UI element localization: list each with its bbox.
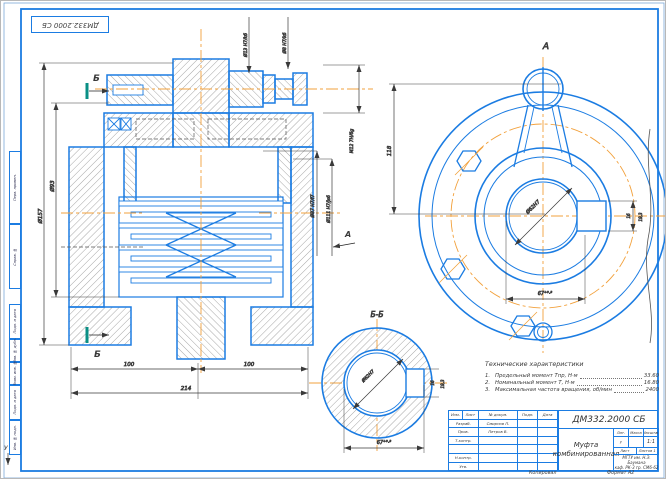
dim-d93: Ø93 <box>49 180 56 193</box>
signature-row: Пров. Петров В. <box>449 428 558 437</box>
sheets-value: 1 <box>653 449 655 453</box>
dim-d87: Ø87 H7/f7 <box>309 194 316 218</box>
doc-number: ДМ332.2000 СБ <box>559 411 659 429</box>
dim-118: 118 <box>387 145 393 156</box>
keyway-a <box>577 201 606 231</box>
organization: МГТУ им. Н.Э. Баумана каф. РК-3 гр. СМ6-… <box>614 455 659 470</box>
tech-req-item: 1. Предельный момент Тпр, Н·м 33.60 <box>485 373 659 380</box>
dim-100-left: 100 <box>124 362 135 368</box>
tech-req-item: 3. Максимальная частота вращения, об/мин… <box>485 387 659 394</box>
side-column-podp-data-2: Подп. и дата <box>9 385 21 420</box>
side-column-perv-primen: Перв. примен. <box>9 151 21 224</box>
dim-100-right: 100 <box>244 362 255 368</box>
title-block-signatures: Изм. Лист № докум. Подп. Дата Разраб. См… <box>449 411 559 470</box>
bearing-seal <box>108 118 131 130</box>
section-letter-bottom: Б <box>94 350 101 360</box>
format-label: Формат А2 <box>607 471 634 476</box>
section-b-label: Б-Б <box>371 310 384 319</box>
side-column-inv-podl: Инв. № подл. <box>9 420 21 455</box>
dim-bore-a: Ø62H7 <box>524 198 542 216</box>
dim-214: 214 <box>181 386 192 392</box>
lit-value: у <box>614 437 629 448</box>
dotted-leader <box>580 373 642 379</box>
technical-requirements: Технические характеристики 1. Предельный… <box>485 361 659 394</box>
doc-number-stamp: ДМ332.2000 СБ <box>31 16 109 33</box>
dotted-leader <box>614 387 644 393</box>
section-letter-top: Б <box>93 74 100 84</box>
keyway-b <box>406 369 424 397</box>
scale-value: 1:1 <box>644 437 659 448</box>
signature-row: Разраб. Смирнов П. <box>449 420 558 429</box>
drawing-sheet: У <box>0 0 666 479</box>
dim-keyway-b: 67⁺⁰·³ <box>377 440 392 446</box>
side-column-vzam-inv: Взам. инв. № <box>9 362 21 385</box>
dim-k19-b: 19,3 <box>440 379 445 388</box>
doc-number-stamp-text: ДМ332.2000 СБ <box>42 21 99 29</box>
signature-row: Т.контр. <box>449 437 558 446</box>
signature-row: Н.контр. <box>449 454 558 463</box>
signature-row <box>449 445 558 454</box>
dim-d8: Ø8 H7/k6 <box>281 32 288 54</box>
signature-row: Утв. <box>449 463 558 472</box>
drawing-canvas: У <box>1 1 666 479</box>
title-block: Изм. Лист № докум. Подп. Дата Разраб. См… <box>448 410 658 471</box>
view-a-label: А <box>542 42 549 52</box>
dim-d157: Ø157 <box>37 208 44 224</box>
tech-req-header: Технические характеристики <box>485 361 659 368</box>
dim-d13: Ø13 H7/k6 <box>242 33 249 58</box>
dim-keyway-a: 67⁺⁰·³ <box>538 291 553 297</box>
side-column-podp-data-1: Подп. и дата <box>9 304 21 339</box>
side-column-inv-dubl: Инв. № дубл. <box>9 339 21 362</box>
view-arrow-letter: А <box>344 230 351 239</box>
dim-m12: М12 7H/6g <box>349 129 355 154</box>
part-title: Муфта комбинированная <box>559 429 614 470</box>
copied-label: Копировал <box>529 471 556 476</box>
dim-k19-a: 19,3 <box>638 212 643 221</box>
side-column-sprav: Справ. № <box>9 224 21 289</box>
dim-d111: Ø111 H7/js6 <box>325 195 332 224</box>
dim-k16-b: 16 <box>430 380 435 386</box>
fold-mark: У <box>4 445 8 452</box>
dim-k16-a: 16 <box>626 213 631 219</box>
section-b-b <box>309 319 447 451</box>
break-line <box>646 129 651 343</box>
view-a <box>419 57 666 353</box>
dotted-leader <box>577 380 642 386</box>
tech-req-item: 2. Номинальный момент Т, Н·м 16.80 <box>485 380 659 387</box>
view-a-annotations: А 118 Ø62H7 67⁺⁰·³ 16 19,3 <box>387 42 643 304</box>
